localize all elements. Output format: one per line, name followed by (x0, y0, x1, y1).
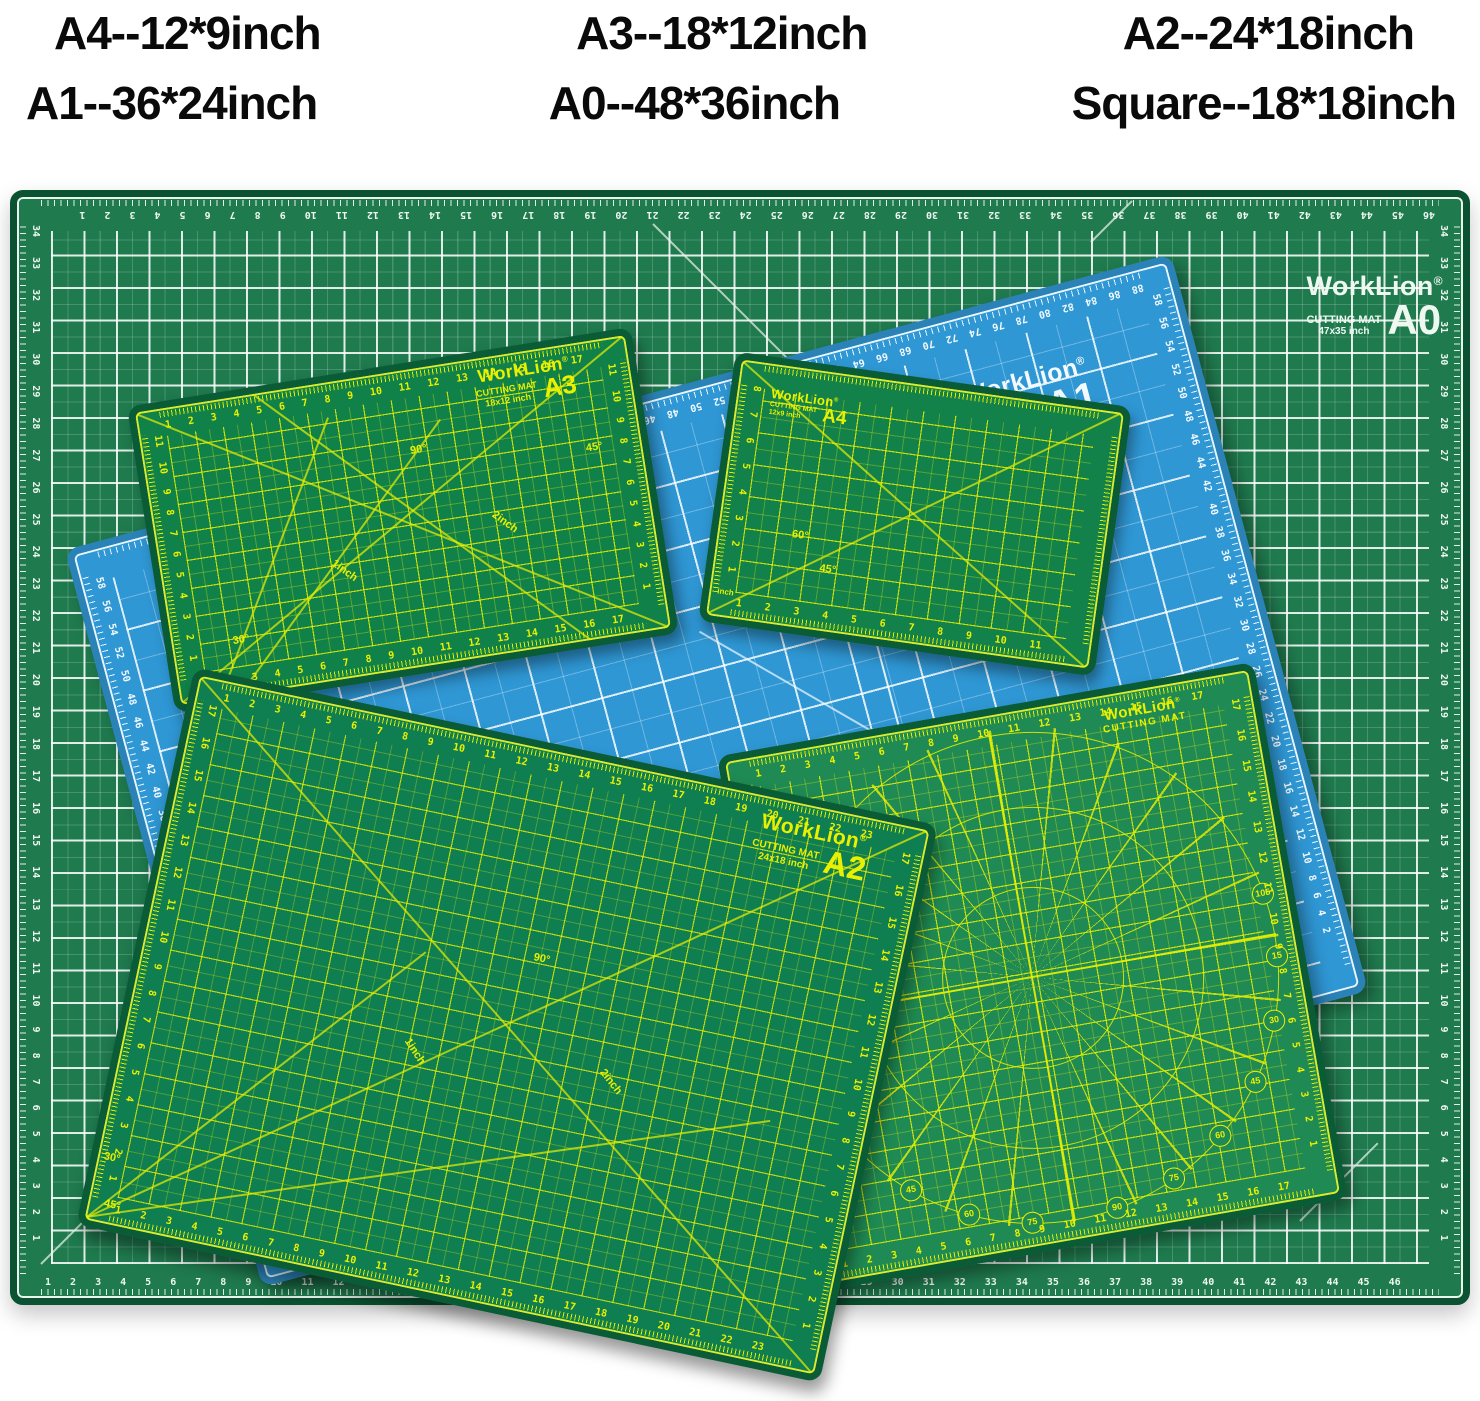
mat-code: A0 (1387, 302, 1441, 338)
product-line-text: CUTTING MAT (1306, 314, 1381, 327)
size-caption-header: A4--12*9inch A3--18*12inch A2--24*18inch… (0, 0, 1480, 130)
ruler-numbers-left: 34 33 32 31 30 29 28 27 26 25 24 23 22 2… (29, 225, 42, 1271)
angle-label-45: 45° (585, 440, 603, 454)
caption-row-1: A4--12*9inch A3--18*12inch A2--24*18inch (0, 0, 1480, 60)
ruler-numbers-top: 46 45 44 43 42 41 40 39 38 37 36 35 34 3… (45, 208, 1435, 221)
ruler-ticks (20, 221, 26, 1274)
caption-row-2: A1--36*24inch A0--48*36inch Square--18*1… (0, 60, 1480, 130)
ruler-ticks (1454, 221, 1460, 1274)
cutting-mat-a4: 60° 45° inch 1 2 3 4 5 6 7 8 9 10 11 8 7… (698, 351, 1132, 676)
angle-label-60: 60° (791, 528, 809, 542)
caption-a2: A2--24*18inch (1123, 6, 1414, 60)
product-image-page: A4--12*9inch A3--18*12inch A2--24*18inch… (0, 0, 1480, 1401)
mat-code: A3 (542, 372, 578, 399)
mat-code: A2 (821, 848, 868, 884)
mat-a0-label: WorkLion® CUTTING MAT 47x35 inch A0 (1306, 271, 1443, 338)
size-text: 47x35 inch (1306, 326, 1381, 338)
caption-a1: A1--36*24inch (26, 76, 317, 130)
mat-a4-surface: 60° 45° inch 1 2 3 4 5 6 7 8 9 10 11 8 7… (698, 351, 1132, 676)
caption-square: Square--18*18inch (1072, 76, 1456, 130)
angle-label-30: 30° (232, 633, 250, 647)
mat-stack-scene: 46 45 44 43 42 41 40 39 38 37 36 35 34 3… (0, 0, 1480, 1401)
ruler-ticks (41, 200, 1439, 206)
angle-label-90: 90° (409, 442, 427, 456)
mat-code: A4 (821, 408, 847, 427)
caption-a0: A0--48*36inch (549, 76, 840, 130)
angle-label-45: 45° (819, 562, 837, 576)
caption-a3: A3--18*12inch (576, 6, 867, 60)
ruler-numbers-right: 34 33 32 31 30 29 28 27 26 25 24 23 22 2… (1437, 225, 1450, 1271)
caption-a4: A4--12*9inch (54, 6, 321, 60)
